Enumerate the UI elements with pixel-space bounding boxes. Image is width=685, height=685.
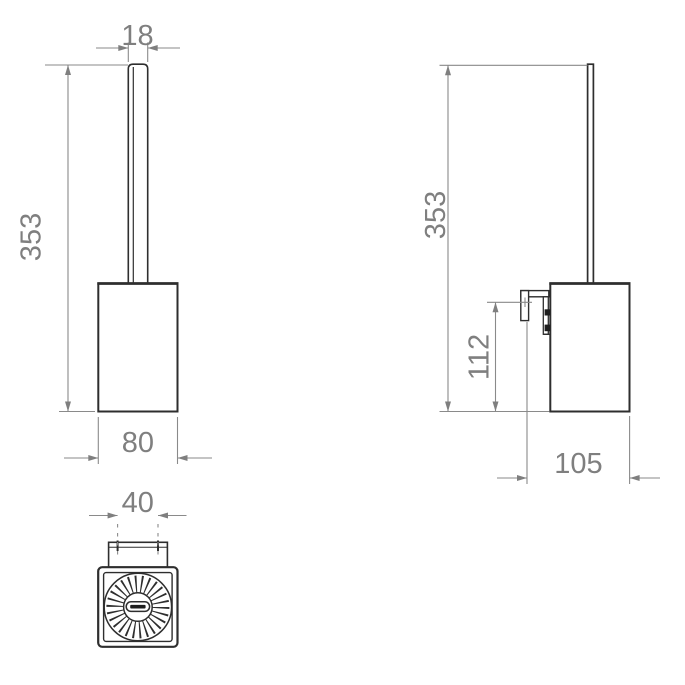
dim-plate-width-label: 40 — [122, 487, 154, 519]
dim-total-height-front-label: 353 — [16, 213, 48, 261]
dim-handle-width-label: 18 — [121, 20, 153, 52]
holder-body-side — [550, 284, 629, 412]
bracket-screw — [545, 309, 551, 315]
handle-slot-bar — [130, 605, 145, 609]
technical-drawing: 18 353 80 — [0, 0, 685, 685]
dim-total-height-side-label: 353 — [420, 191, 452, 239]
holder-body-front — [98, 284, 177, 412]
dim-bracket-height-label: 112 — [464, 334, 496, 380]
brush-handle-side — [588, 64, 594, 283]
dim-body-width-label: 80 — [122, 427, 154, 459]
technical-drawing-page: 18 353 80 — [0, 0, 685, 685]
bracket-screw — [545, 325, 551, 332]
brush-handle-front — [128, 64, 147, 283]
dim-depth-label: 105 — [554, 448, 602, 480]
